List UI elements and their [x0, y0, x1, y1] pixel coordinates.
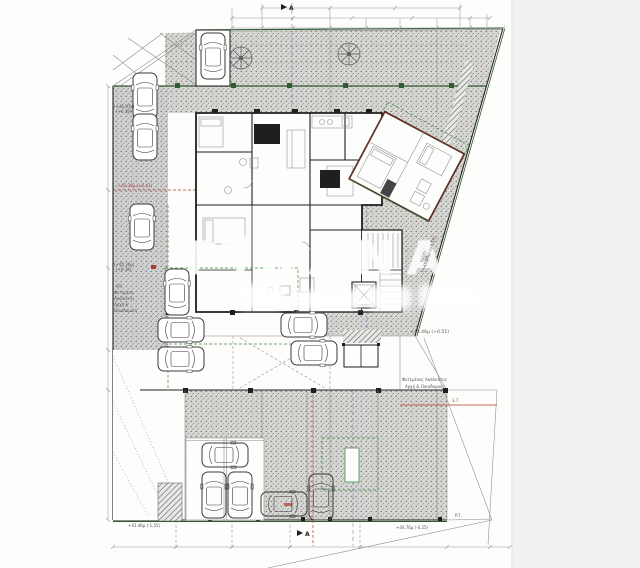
car — [227, 472, 254, 518]
car — [129, 204, 156, 250]
red-dimension-label: 3.7 — [452, 398, 459, 403]
section-marker-label: A — [305, 531, 310, 538]
parking-grille — [158, 483, 182, 521]
p7-label: P.7 — [455, 513, 461, 518]
car — [201, 472, 228, 518]
note-left-line2: Φυτεμένη — [114, 290, 134, 295]
elevation-label-red-left: +45.36μ (+0.41) — [118, 183, 152, 188]
note-left-line5: Οικοδομική — [114, 308, 137, 313]
floor-plan-drawing: PIKANA (+45.07μ) (+0.38) (+45.36μ) (+0.3… — [0, 0, 640, 568]
elevation-label-top-left-2: (+0.38) — [116, 109, 132, 114]
car — [132, 114, 159, 160]
note-left-line1: ΥΠ. — [115, 284, 123, 289]
elevation-label-bottom-left: +43.46μ (-1.55) — [128, 523, 161, 528]
section-marker-label: A — [289, 5, 294, 12]
note-right-line1: Φυτεμένος Ακάλυπτος — [402, 377, 447, 382]
floor-plan-page: PIKANA (+45.07μ) (+0.38) (+45.36μ) (+0.3… — [0, 0, 640, 568]
note-left-line4: Αρχή & — [114, 302, 129, 307]
elevation-label-mid-left-2: (+0.38) — [116, 267, 132, 272]
note-left-line3: Ακάλυπτη — [114, 296, 134, 301]
note-right-line2: Αρχή & Οικοδομική — [405, 384, 444, 389]
car — [200, 33, 227, 79]
car — [281, 312, 327, 339]
tree-icon — [230, 47, 252, 69]
car — [308, 474, 335, 520]
car — [291, 340, 337, 367]
car — [158, 317, 204, 344]
elevation-label-right: +45.46μ (+0.51) — [410, 329, 449, 335]
car — [132, 73, 159, 119]
elevation-label-bottom-right: +44.76μ (-0.25) — [396, 525, 429, 530]
car — [261, 491, 307, 518]
car — [158, 346, 204, 373]
car — [202, 442, 248, 469]
tree-icon — [338, 43, 360, 65]
